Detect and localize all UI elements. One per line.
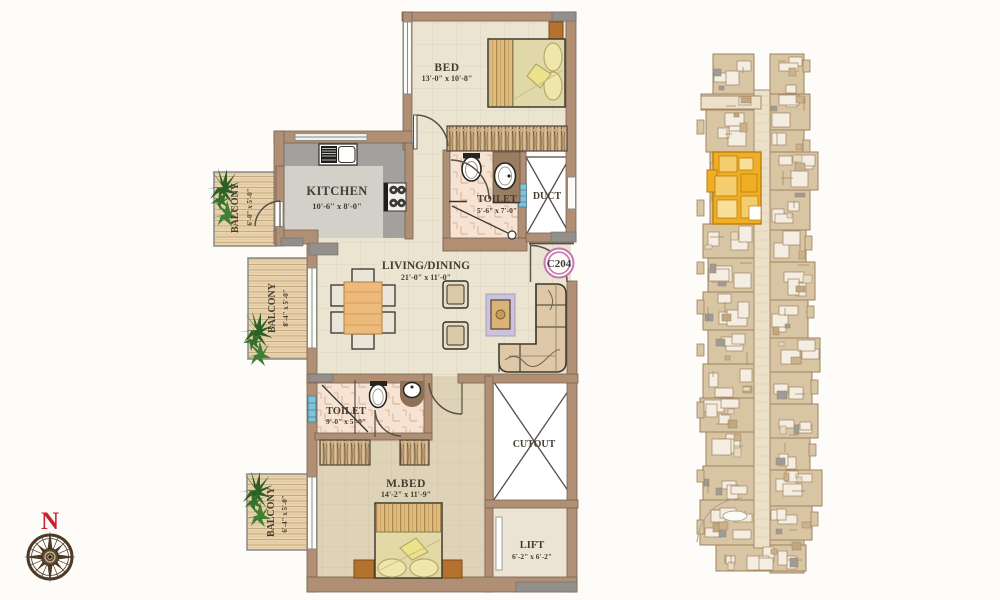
- svg-text:BALCONY: BALCONY: [267, 282, 278, 333]
- svg-text:13'-0" x 10'-8": 13'-0" x 10'-8": [422, 74, 473, 83]
- svg-text:21'-0" x 11'-0": 21'-0" x 11'-0": [401, 273, 451, 282]
- svg-text:6'-4" x 5'-0": 6'-4" x 5'-0": [281, 495, 289, 532]
- svg-text:9'-0" x 5'-0": 9'-0" x 5'-0": [326, 417, 366, 426]
- svg-text:14'-2" x 11'-9": 14'-2" x 11'-9": [381, 490, 431, 499]
- svg-text:KITCHEN: KITCHEN: [306, 184, 367, 198]
- svg-text:BALCONY: BALCONY: [266, 486, 277, 537]
- svg-text:6'-0" x 5'-0": 6'-0" x 5'-0": [246, 188, 254, 225]
- svg-text:BED: BED: [434, 62, 459, 74]
- svg-text:TOILET: TOILET: [326, 406, 366, 417]
- svg-text:DUCT: DUCT: [533, 191, 562, 202]
- svg-text:C204: C204: [547, 258, 572, 270]
- svg-text:BALCONY: BALCONY: [230, 182, 241, 233]
- svg-text:TOILET: TOILET: [477, 194, 517, 205]
- svg-text:6'-2" x 6'-2": 6'-2" x 6'-2": [512, 552, 552, 561]
- svg-text:LIFT: LIFT: [520, 540, 545, 551]
- svg-text:M.BED: M.BED: [386, 478, 426, 490]
- svg-text:CUTOUT: CUTOUT: [513, 439, 556, 450]
- svg-text:LIVING/DINING: LIVING/DINING: [382, 260, 470, 272]
- svg-text:5'-6" x 7'-0": 5'-6" x 7'-0": [477, 206, 517, 215]
- svg-text:10'-6" x 8'-0": 10'-6" x 8'-0": [312, 201, 362, 211]
- svg-text:N: N: [41, 508, 59, 535]
- svg-text:8'-4" x 5'-0": 8'-4" x 5'-0": [282, 289, 290, 326]
